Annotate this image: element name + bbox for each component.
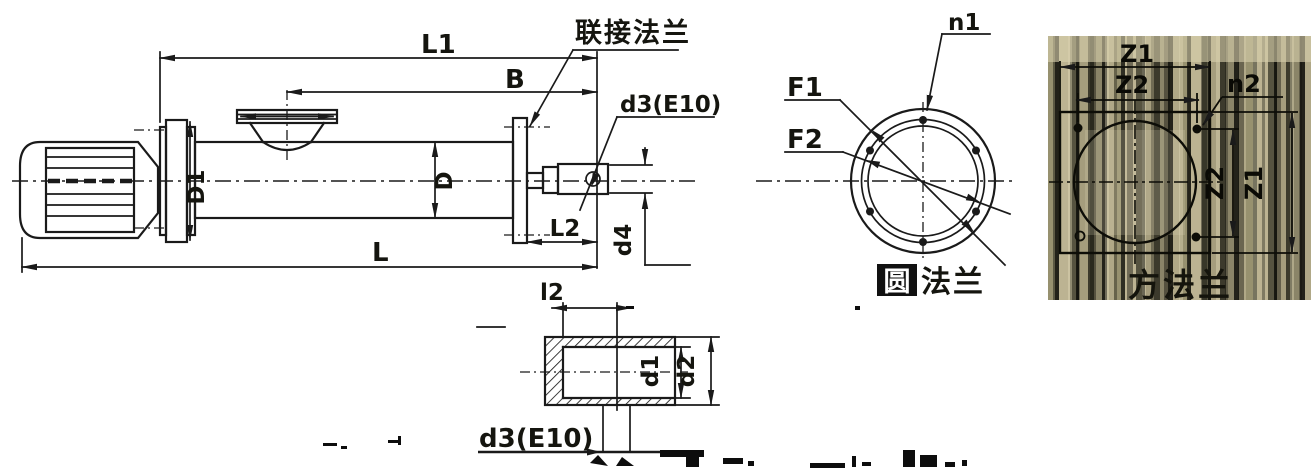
dim-label-L2: L2 bbox=[550, 216, 581, 242]
dim-label-L1: L1 bbox=[421, 30, 456, 60]
dim-label-F2: F2 bbox=[787, 125, 823, 155]
dim-label-Z2-right: Z2 bbox=[1201, 166, 1229, 200]
dim-label-Z1-right: Z1 bbox=[1240, 166, 1268, 200]
square-flange-view: Z1 Z2 n2 Z2 Z1 方法兰 bbox=[1048, 36, 1311, 304]
drive-shaft bbox=[527, 117, 617, 210]
dim-label-D1: D1 bbox=[184, 169, 210, 204]
dim-label-B: B bbox=[505, 65, 525, 95]
dim-label-d2: d2 bbox=[674, 355, 700, 387]
pump-dimension-drawing: L1 B 联接法兰 d3(E10) D1 D L2 d4 L F1 F2 n1 bbox=[0, 0, 1311, 468]
drawing-canvas: L1 B 联接法兰 d3(E10) D1 D L2 d4 L F1 F2 n1 bbox=[0, 0, 1311, 468]
dim-label-l2: l2 bbox=[540, 280, 564, 306]
connecting-flange-label: 联接法兰 bbox=[575, 18, 691, 49]
inlet-flange bbox=[237, 90, 337, 160]
dim-label-Z1-top: Z1 bbox=[1120, 40, 1154, 68]
dim-label-Z2-top: Z2 bbox=[1115, 71, 1149, 99]
caption-char-round: 圆 bbox=[884, 267, 911, 298]
dim-label-n1: n1 bbox=[948, 10, 980, 36]
motor bbox=[20, 142, 158, 238]
dim-label-d1: d1 bbox=[638, 355, 664, 387]
dim-label-D: D bbox=[432, 171, 458, 190]
coupling-sleeve-detail: l2 d1 d2 d3(E10) bbox=[477, 280, 719, 456]
dim-label-n2: n2 bbox=[1227, 70, 1261, 98]
dim-label-F1: F1 bbox=[787, 73, 823, 103]
dim-label-d4: d4 bbox=[611, 224, 637, 256]
square-flange-caption: 方法兰 bbox=[1128, 266, 1233, 304]
dim-label-d3-top: d3(E10) bbox=[620, 92, 721, 118]
pump-body bbox=[195, 142, 513, 218]
motor-fin-box bbox=[46, 148, 134, 232]
dim-label-L: L bbox=[372, 238, 389, 268]
dim-label-d3-bottom: d3(E10) bbox=[479, 424, 593, 454]
round-flange-caption: 圆 法兰 bbox=[877, 264, 985, 300]
caption-rest-round: 法兰 bbox=[921, 265, 985, 300]
